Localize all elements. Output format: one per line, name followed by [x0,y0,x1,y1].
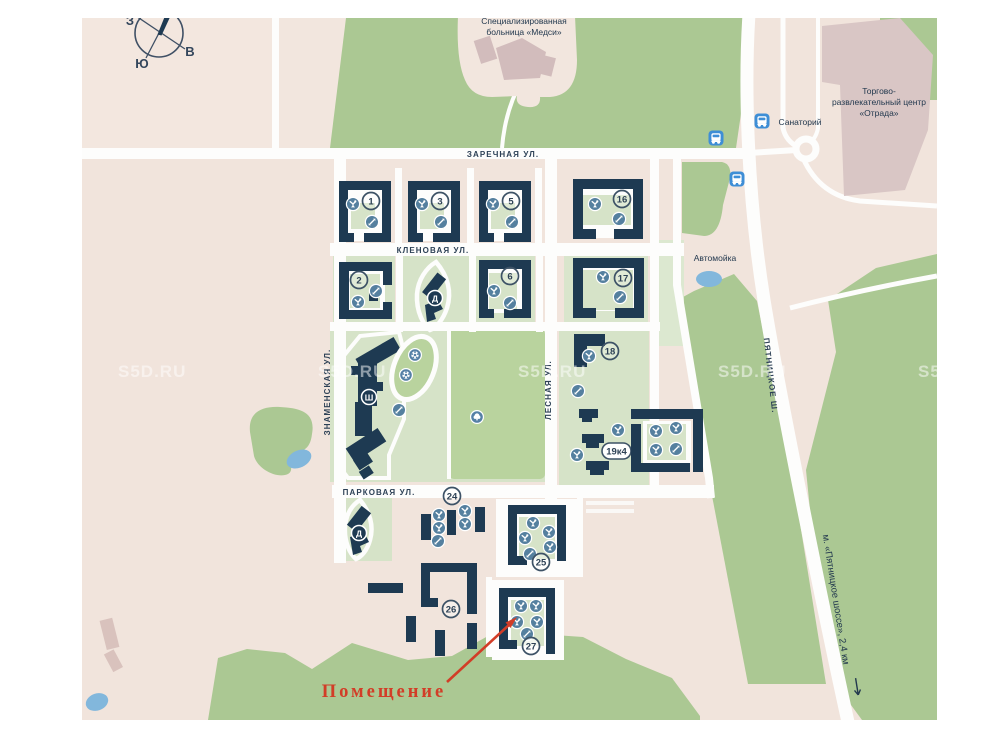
svg-text:S5D.RU: S5D.RU [518,362,586,381]
svg-text:Помещение: Помещение [322,682,446,702]
svg-text:1: 1 [368,197,374,208]
svg-text:больница «Медси»: больница «Медси» [486,27,562,37]
svg-text:Д: Д [432,294,438,304]
svg-text:Торгово-: Торгово- [862,86,896,96]
svg-text:Ю: Ю [135,56,148,71]
svg-text:24: 24 [447,492,458,503]
svg-text:S5D.RU: S5D.RU [318,362,386,381]
svg-text:«Отрада»: «Отрада» [859,108,898,118]
svg-text:ЗАРЕЧНАЯ УЛ.: ЗАРЕЧНАЯ УЛ. [467,150,539,159]
svg-text:5: 5 [508,197,514,208]
svg-text:25: 25 [536,558,547,569]
svg-text:S5D.RU: S5D.RU [918,362,986,381]
svg-text:S5D.RU: S5D.RU [718,362,786,381]
svg-text:КЛЕНОВАЯ УЛ.: КЛЕНОВАЯ УЛ. [397,246,470,255]
svg-text:развлекательный центр: развлекательный центр [832,97,926,107]
svg-text:ПАРКОВАЯ УЛ.: ПАРКОВАЯ УЛ. [343,488,416,497]
svg-text:16: 16 [617,195,628,206]
svg-text:Ш: Ш [365,393,374,403]
svg-text:18: 18 [605,347,616,358]
svg-text:2: 2 [356,276,361,287]
svg-text:6: 6 [507,272,512,283]
svg-text:Санаторий: Санаторий [779,117,822,127]
svg-text:26: 26 [446,605,457,616]
svg-text:3: 3 [437,197,442,208]
svg-text:19к4: 19к4 [606,447,627,458]
svg-text:27: 27 [526,642,537,653]
svg-text:Специализированная: Специализированная [481,16,567,26]
svg-text:S5D.RU: S5D.RU [118,362,186,381]
svg-text:Автомойка: Автомойка [694,253,737,263]
svg-text:З: З [126,13,134,28]
svg-text:Д: Д [356,529,362,539]
svg-text:17: 17 [618,274,629,285]
svg-text:В: В [185,44,194,59]
